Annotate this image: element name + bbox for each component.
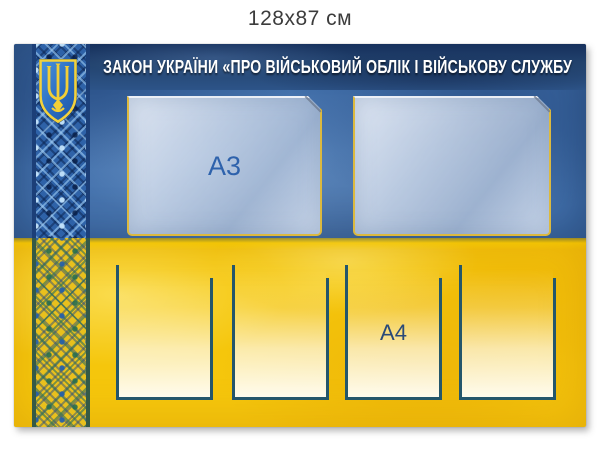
a4-pocket-2 bbox=[232, 265, 329, 400]
product-size-caption: 128x87 см bbox=[0, 7, 600, 31]
pocket-edge bbox=[345, 265, 348, 400]
pocket-edge bbox=[116, 265, 119, 400]
pocket-edge bbox=[326, 278, 329, 400]
ornament-yellow-part bbox=[32, 238, 90, 427]
trident-emblem-icon bbox=[36, 56, 80, 126]
info-stand-board: ЗАКОН УКРАЇНИ «ПРО ВІЙСЬКОВИЙ ОБЛІК І ВІ… bbox=[14, 44, 586, 427]
pocket-edge bbox=[232, 397, 329, 400]
a4-pocket-4 bbox=[459, 265, 556, 400]
pocket-edge bbox=[459, 397, 556, 400]
pocket-edge bbox=[459, 265, 462, 400]
board-title: ЗАКОН УКРАЇНИ «ПРО ВІЙСЬКОВИЙ ОБЛІК І ВІ… bbox=[104, 57, 573, 78]
a4-pocket-3: А4 bbox=[345, 265, 442, 400]
a4-pocket-1 bbox=[116, 265, 213, 400]
title-band: ЗАКОН УКРАЇНИ «ПРО ВІЙСЬКОВИЙ ОБЛІК І ВІ… bbox=[90, 44, 586, 90]
a3-size-label: А3 bbox=[208, 151, 241, 182]
pocket-edge bbox=[210, 278, 213, 400]
a4-size-label: А4 bbox=[380, 320, 407, 346]
pocket-fill: А4 bbox=[348, 269, 439, 397]
pocket-edge bbox=[116, 397, 213, 400]
pocket-edge bbox=[439, 278, 442, 400]
pocket-fill bbox=[119, 269, 210, 397]
a3-pocket-1: А3 bbox=[127, 96, 322, 236]
pocket-edge bbox=[232, 265, 235, 400]
a3-pocket-2 bbox=[353, 96, 551, 236]
product-image: 128x87 см ЗАКОН УКРАЇНИ «ПРО ВІЙСЬКОВИЙ … bbox=[0, 0, 600, 452]
pocket-fill bbox=[462, 269, 553, 397]
pocket-fill bbox=[235, 269, 326, 397]
pocket-edge bbox=[345, 397, 442, 400]
pocket-edge bbox=[553, 278, 556, 400]
